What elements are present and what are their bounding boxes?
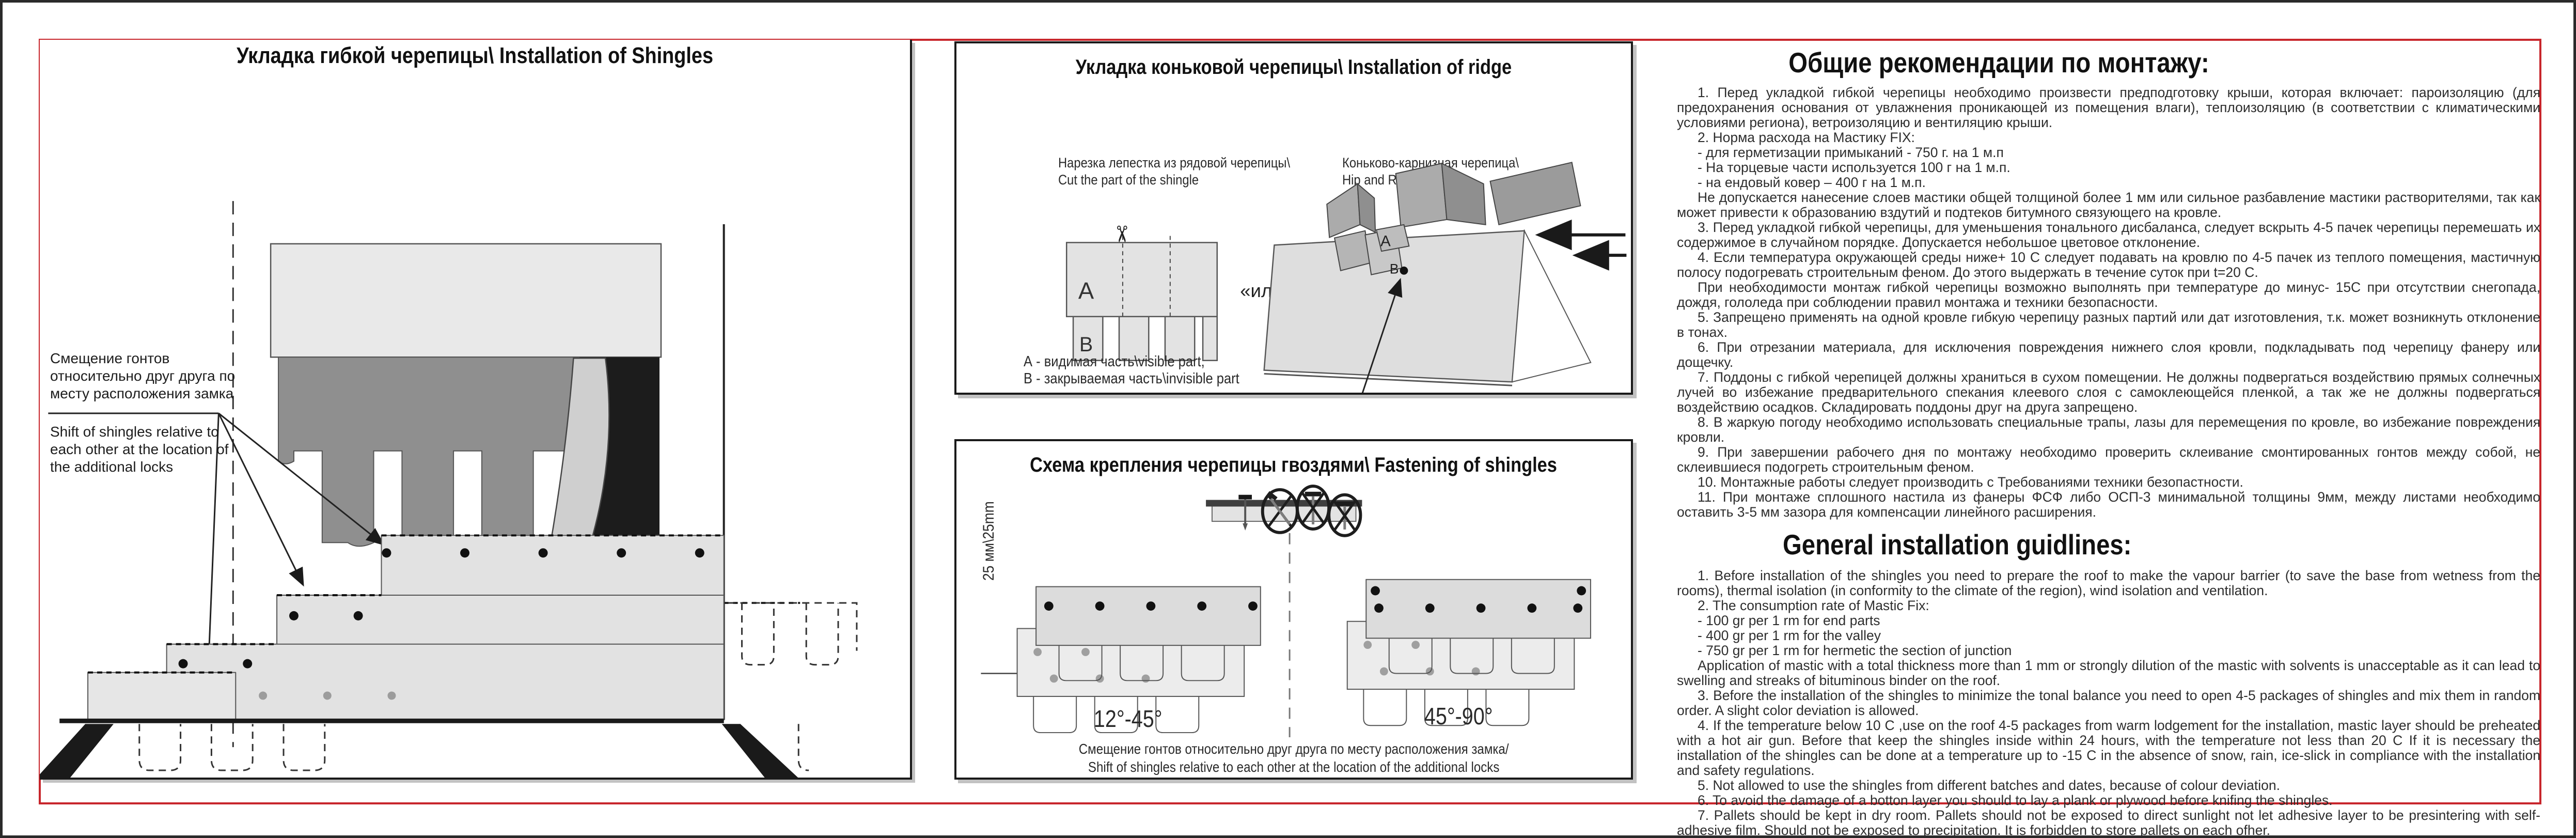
letter-b-label: B <box>1079 333 1093 356</box>
paragraph: 9. При завершении рабочего дня по монтаж… <box>1677 445 2540 475</box>
paragraph: - 100 gr per 1 rm for end parts <box>1677 613 2540 628</box>
scissors-icon: ✂ <box>1108 225 1134 243</box>
angle-high-label: 45°-90° <box>1419 702 1498 730</box>
ridge-diagram: A B ✂ «или» \ or <box>956 43 1631 393</box>
angle-low-label: 12°-45° <box>1088 705 1168 733</box>
shingles-installation-panel: Укладка гибкой черепицы\ Installation of… <box>40 40 912 780</box>
dimension-label: 25 мм\25mm <box>980 490 998 581</box>
paragraph: 5. Запрещено применять на одной кровле г… <box>1677 310 2540 340</box>
paragraph: - На торцевые части используется 100 г н… <box>1677 160 2540 175</box>
fastening-diagram <box>956 441 1631 778</box>
paragraph: 6. To avoid the damage of a botton layer… <box>1677 793 2540 808</box>
guidelines-title: General installation guidlines: <box>1754 528 2540 561</box>
paragraph: 7. Поддоны с гибкой черепицей должны хра… <box>1677 370 2540 415</box>
recommendations-text: 1. Перед укладкой гибкой черепицы необхо… <box>1677 85 2540 520</box>
guidelines-text: 1. Before installation of the shingles y… <box>1677 568 2540 838</box>
paragraph: 3. Before the installation of the shingl… <box>1677 688 2540 718</box>
recommendations-column: Общие рекомендации по монтажу: 1. Перед … <box>1677 46 2540 838</box>
ridge-letter-b: B <box>1390 261 1399 277</box>
hidden-starter-tabs <box>139 724 325 770</box>
paragraph: 4. Если температура окружающей среды ниж… <box>1677 250 2540 280</box>
letter-a-label: A <box>1078 277 1094 304</box>
shift-label-en: Shift of shingles relative to each other… <box>50 423 242 476</box>
paragraph: 3. Перед укладкой гибкой черепицы, для у… <box>1677 220 2540 250</box>
cut-diagram: A B ✂ <box>1066 225 1217 361</box>
ridge-installation-panel: Укладка коньковой черепицы\ Installation… <box>954 41 1633 395</box>
paragraph: 6. При отрезании материала, для исключен… <box>1677 340 2540 370</box>
paragraph: 2. The consumption rate of Mastic Fix: <box>1677 598 2540 613</box>
fastening-panel: Схема крепления черепицы гвоздями\ Faste… <box>954 439 1633 780</box>
paragraph: 8. В жаркую погоду необходимо использова… <box>1677 415 2540 445</box>
paragraph: 10. Монтажные работы следует производить… <box>1677 475 2540 490</box>
shingles-diagram <box>40 40 910 778</box>
paragraph: 5. Not allowed to use the shingles from … <box>1677 778 2540 793</box>
right-drip-flap <box>722 724 799 778</box>
paragraph: Application of mastic with a total thick… <box>1677 658 2540 688</box>
shift-label-ru: Смещение гонтов относительно друг друга … <box>50 350 242 402</box>
paragraph: 7. Pallets should be kept in dry room. P… <box>1677 808 2540 838</box>
paragraph: Не допускается нанесение слоев мастики о… <box>1677 190 2540 220</box>
nailing-cross-section <box>1206 486 1362 536</box>
paragraph: 4. If the temperature below 10 C ,use on… <box>1677 718 2540 778</box>
paragraph: - для герметизации примыканий - 750 г. н… <box>1677 145 2540 160</box>
left-drip-flap <box>40 724 114 778</box>
paragraph: - 400 gr per 1 rm for the valley <box>1677 628 2540 643</box>
paragraph: 1. Before installation of the shingles y… <box>1677 568 2540 598</box>
paragraph: 1. Перед укладкой гибкой черепицы необхо… <box>1677 85 2540 130</box>
ridge-pieces <box>1327 162 1580 237</box>
paragraph: 11. При монтаже сплошного настила из фан… <box>1677 490 2540 520</box>
fixing-nail-dot <box>1400 267 1408 275</box>
paragraph: - на ендовый ковер – 400 г на 1 м.п. <box>1677 175 2540 190</box>
paragraph: При необходимости монтаж гибкой черепицы… <box>1677 280 2540 310</box>
instruction-sheet: Укладка гибкой черепицы\ Installation of… <box>0 0 2576 838</box>
shingle-courses <box>88 535 724 720</box>
ridge-tent: A B <box>1264 225 1591 393</box>
ridge-letter-a: A <box>1380 232 1391 250</box>
legend: А - видимая часть\visible part,В - закры… <box>1024 353 1269 387</box>
fastening-caption: Смещение гонтов относительно друг друга … <box>956 740 1631 776</box>
paragraph: 2. Норма расхода на Мастику FIX: <box>1677 130 2540 145</box>
paragraph: - 750 gr per 1 rm for hermetic the secti… <box>1677 643 2540 658</box>
recommendations-title: Общие рекомендации по монтажу: <box>1754 46 2540 79</box>
